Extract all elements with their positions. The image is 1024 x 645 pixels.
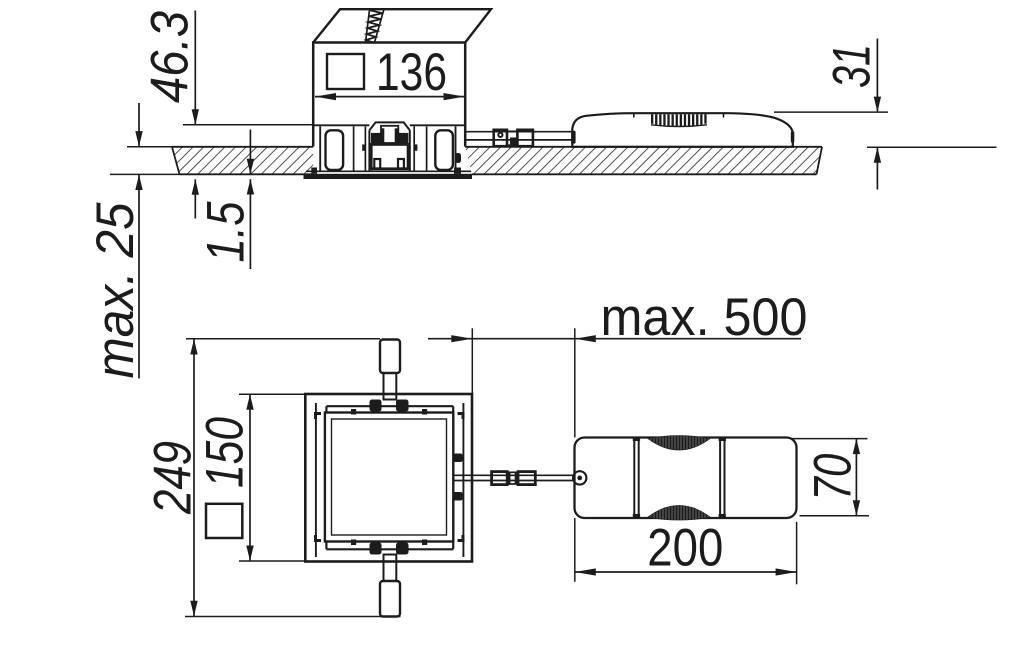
svg-text:46.3: 46.3 xyxy=(141,11,200,103)
svg-text:1.5: 1.5 xyxy=(197,201,256,262)
svg-text:136: 136 xyxy=(376,43,447,102)
svg-text:249: 249 xyxy=(144,441,203,515)
svg-text:max. 25: max. 25 xyxy=(86,202,145,378)
svg-text:70: 70 xyxy=(804,453,863,500)
svg-text:max. 500: max. 500 xyxy=(601,288,808,347)
svg-text:31: 31 xyxy=(823,44,882,88)
svg-text:200: 200 xyxy=(647,519,723,578)
svg-text:150: 150 xyxy=(196,417,255,488)
